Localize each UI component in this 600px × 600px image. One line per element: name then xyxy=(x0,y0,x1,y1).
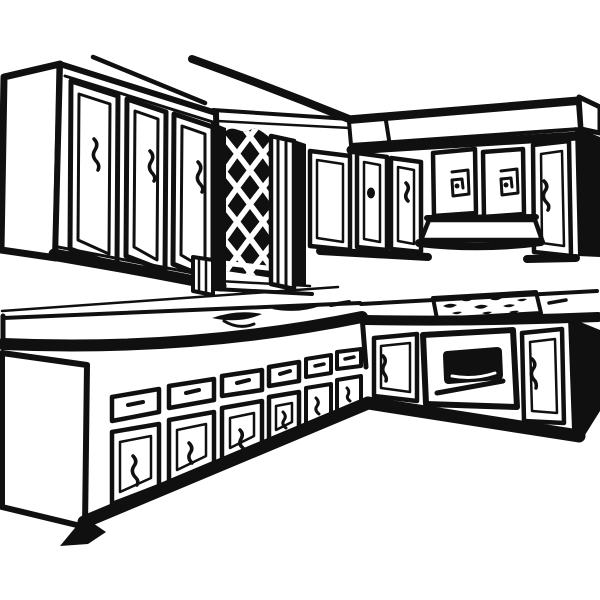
drawer-handle xyxy=(128,402,143,405)
door-handle-dot xyxy=(504,183,509,188)
cabinet-side-shadow xyxy=(568,317,600,435)
door-handle xyxy=(132,456,137,485)
soffit-inner-line xyxy=(217,121,350,128)
kitchen-clipart-canvas: Kitchen clip art — black and white line … xyxy=(0,0,600,600)
kitchen-illustration: Kitchen clip art — black and white line … xyxy=(0,0,600,600)
post-body xyxy=(193,257,213,295)
drawer-handle xyxy=(280,371,290,374)
door-handle-dot xyxy=(455,184,460,189)
hood-body xyxy=(421,220,542,240)
cabinet-side-panel xyxy=(1,64,60,258)
door-handle xyxy=(543,181,548,210)
door-outer-frame xyxy=(357,153,387,250)
base-cabinets-left xyxy=(2,349,368,546)
door-handle xyxy=(316,398,319,414)
drawer-handle xyxy=(237,380,249,383)
toe-kick-band xyxy=(84,403,368,522)
sink-basin xyxy=(212,312,262,320)
cabinet-door xyxy=(357,153,387,250)
cabinet-door xyxy=(374,334,417,401)
base-cabinets-right xyxy=(368,317,600,436)
door-handle xyxy=(406,183,409,201)
cabinet-door xyxy=(310,151,350,250)
cabinet-door xyxy=(483,149,524,217)
counter-front-band xyxy=(3,317,362,345)
countertop-right xyxy=(361,291,598,321)
kitchen-line-art xyxy=(0,0,600,600)
door-handle xyxy=(347,388,350,401)
cabinet-door xyxy=(433,149,476,216)
cabinet-door xyxy=(522,329,564,423)
door-inner-panel xyxy=(381,343,410,392)
cabinet-bottom-band-right xyxy=(527,258,576,259)
cabinet-door xyxy=(391,158,421,252)
drawer xyxy=(112,389,159,421)
faucet-curve xyxy=(224,321,254,326)
drawer xyxy=(306,355,331,377)
hood-bottom-band xyxy=(419,242,541,246)
drawer-handle xyxy=(315,364,324,366)
drawer xyxy=(222,370,262,396)
door-handle xyxy=(189,443,192,463)
lattice-left-post xyxy=(193,257,213,295)
door-handle xyxy=(367,188,375,199)
door-handle xyxy=(383,356,387,381)
lattice-right-shadow xyxy=(294,140,306,286)
range-hood xyxy=(419,217,542,246)
post-body xyxy=(271,136,294,289)
counter-dash xyxy=(549,300,566,303)
door-inner-panel xyxy=(398,167,414,244)
door-handle-spiral xyxy=(452,170,469,196)
cabinet-side-panel xyxy=(2,353,87,527)
door-handle xyxy=(283,412,286,428)
soffit-end-cap xyxy=(579,97,600,133)
drawer xyxy=(337,349,361,369)
door-outer-frame xyxy=(391,158,421,252)
drawer-handle xyxy=(186,390,199,393)
door-inner-panel xyxy=(364,162,380,242)
drawer-handle xyxy=(345,357,354,359)
lattice-right-post xyxy=(271,136,294,289)
door-inner-panel xyxy=(317,160,343,242)
cabinet-side-shadow xyxy=(575,127,600,257)
oven xyxy=(423,330,517,407)
drawer xyxy=(169,379,214,408)
door-handle xyxy=(240,430,243,448)
door-inner-panel xyxy=(530,339,557,413)
drawer xyxy=(269,362,299,386)
door-handle-spiral xyxy=(501,169,518,195)
